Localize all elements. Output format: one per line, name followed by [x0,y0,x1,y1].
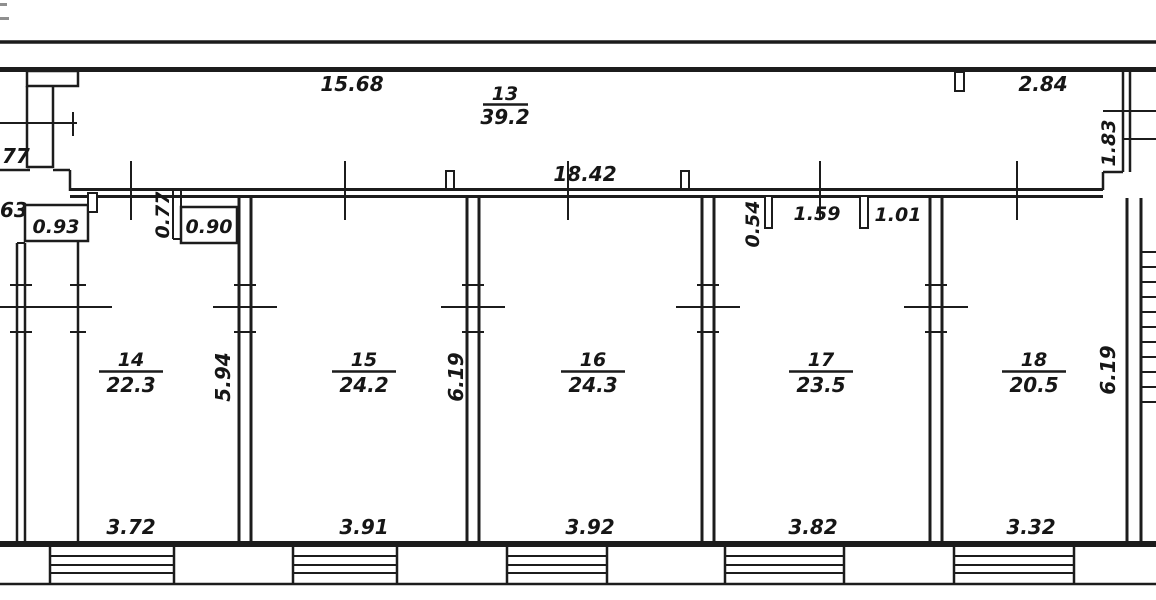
dim-room-14-depth: 5.94 [211,352,235,401]
shaft-top-left [0,71,78,191]
floor-plan-svg: 15.68 13 39.2 2.84 18.42 77 63 0.93 0.77… [0,0,1156,600]
opening-door-left-label: 0.77 [152,191,174,239]
room-labels: 14 22.3 15 24.2 16 24.3 17 23.5 18 20.5 [99,349,1066,397]
edge-label-upper: 77 [2,144,30,168]
room-17-number: 17 [808,349,835,371]
room-13-number: 13 [492,83,518,105]
dim-corridor-inner: 18.42 [553,162,616,186]
wall-openings: 0.93 0.77 0.90 0.54 1.59 1.01 [25,191,921,248]
wall-pin [955,72,964,91]
opening-span-mid-label: 1.59 [794,203,841,225]
opening-niche-left-label: 0.93 [33,216,80,238]
opening-niche-right-label: 0.90 [186,216,233,238]
stairs [1141,252,1156,402]
room-14-number: 14 [118,349,144,371]
floor-plan-page: 15.68 13 39.2 2.84 18.42 77 63 0.93 0.77… [0,0,1156,600]
room-13-area: 39.2 [480,105,529,129]
room-16-area: 24.3 [568,373,617,397]
dim-room-18-width: 3.32 [1006,515,1055,539]
dim-room-14-width: 3.72 [106,515,155,539]
room-14-area: 22.3 [106,373,155,397]
dim-corridor-length: 15.68 [320,72,383,96]
exterior-top-wall [0,3,1156,91]
right-wall-and-landing: 1.83 [1098,71,1156,190]
opening-door-right-label: 1.01 [875,204,922,226]
room-17-area: 23.5 [796,373,845,397]
dim-stair-label: 1.83 [1098,120,1120,167]
opening-door-mid-label: 0.54 [742,201,764,248]
room-18-number: 18 [1021,349,1047,371]
dim-room-18-depth: 6.19 [1096,345,1120,394]
dim-corridor-right: 2.84 [1018,72,1067,96]
width-dimensions: 3.72 3.91 3.92 3.82 3.32 [106,515,1055,539]
dim-room-15-depth: 6.19 [444,352,468,401]
dim-room-15-width: 3.91 [339,515,388,539]
room-15-number: 15 [351,349,377,371]
edge-label-lower: 63 [0,198,28,222]
room-15-area: 24.2 [339,373,388,397]
dim-room-17-width: 3.82 [788,515,837,539]
room-16-number: 16 [580,349,606,371]
windows [50,556,1074,573]
dim-room-16-width: 3.92 [565,515,614,539]
exterior-left-wall [0,241,112,541]
room-18-area: 20.5 [1009,373,1058,397]
